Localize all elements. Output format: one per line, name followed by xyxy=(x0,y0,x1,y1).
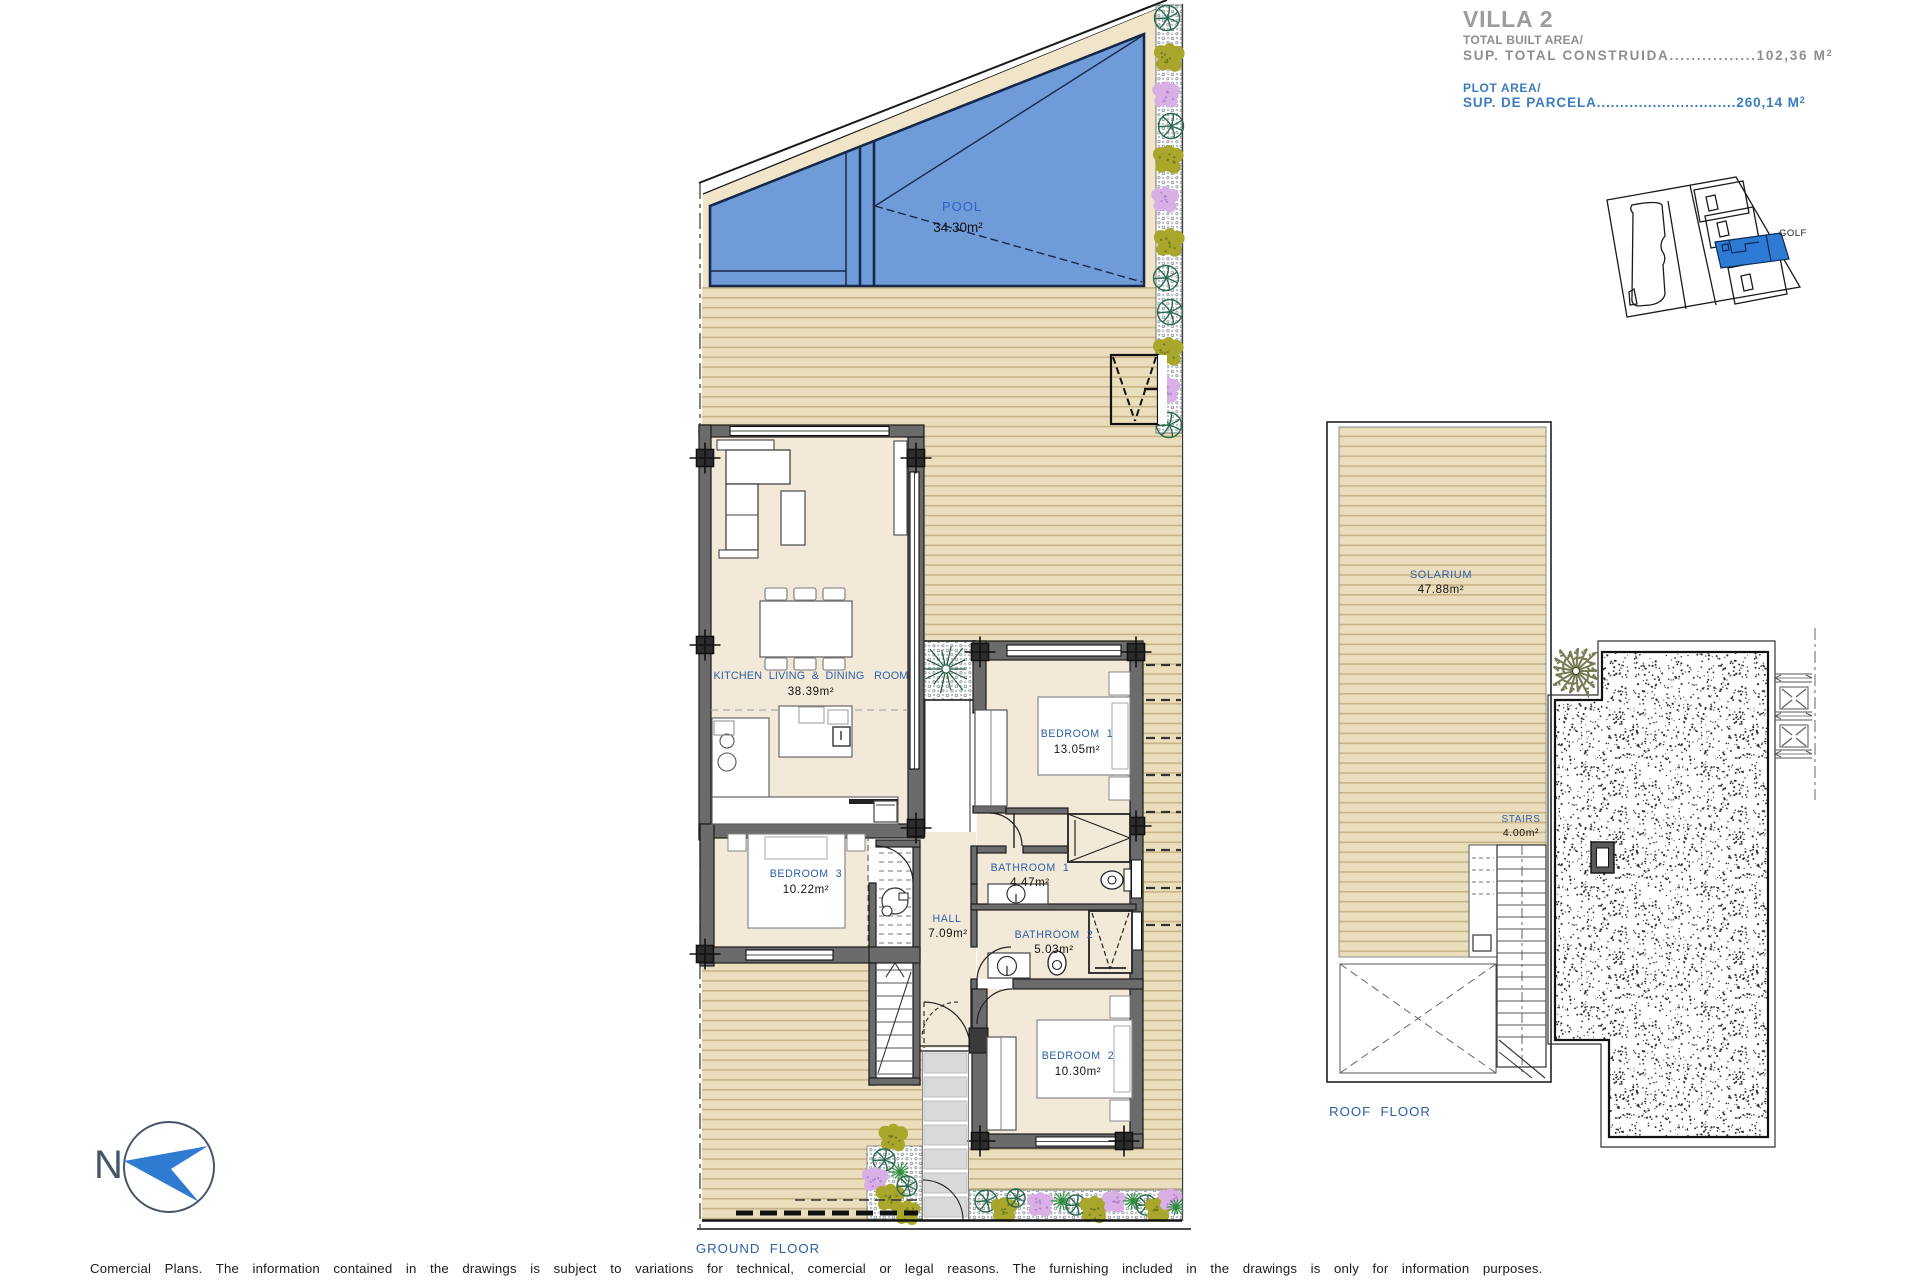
svg-text:KITCHEN LIVING & DINING R: KITCHEN LIVING & DINING ROOM xyxy=(714,670,909,682)
svg-text:7.09m²: 7.09m² xyxy=(928,928,967,940)
svg-text:BEDROOM 3: BEDROOM 3 xyxy=(770,868,843,880)
svg-text:47.88m²: 47.88m² xyxy=(1418,584,1464,596)
svg-text:SUP. TOTAL CONSTRUIDA.........: SUP. TOTAL CONSTRUIDA................102… xyxy=(1463,48,1833,63)
svg-text:BATHROOM 1: BATHROOM 1 xyxy=(991,862,1070,874)
svg-text:STAIRS: STAIRS xyxy=(1502,814,1541,825)
svg-text:PLOT AREA/: PLOT AREA/ xyxy=(1463,81,1541,95)
svg-text:POOL: POOL xyxy=(942,199,982,214)
svg-text:GOLF: GOLF xyxy=(1779,228,1807,239)
svg-text:BATHROOM 2: BATHROOM 2 xyxy=(1015,929,1094,941)
svg-text:BEDROOM 1: BEDROOM 1 xyxy=(1041,728,1114,740)
svg-text:4.47m²: 4.47m² xyxy=(1010,877,1049,889)
svg-text:VILLA 2: VILLA 2 xyxy=(1463,6,1553,32)
svg-text:38.39m²: 38.39m² xyxy=(788,686,834,698)
svg-text:10.30m²: 10.30m² xyxy=(1055,1066,1101,1078)
svg-text:10.22m²: 10.22m² xyxy=(783,884,829,896)
svg-text:SUP. DE PARCELA...............: SUP. DE PARCELA.........................… xyxy=(1463,95,1806,110)
svg-text:N: N xyxy=(94,1143,123,1187)
svg-text:SOLARIUM: SOLARIUM xyxy=(1410,569,1472,581)
svg-text:ROOF FLOOR: ROOF FLOOR xyxy=(1329,1104,1431,1119)
svg-text:HALL: HALL xyxy=(933,913,962,925)
svg-text:13.05m²: 13.05m² xyxy=(1054,744,1100,756)
svg-text:Comercial Plans. The informati: Comercial Plans. The information contain… xyxy=(90,1261,1543,1276)
svg-text:34.30m²: 34.30m² xyxy=(933,220,983,235)
svg-text:4.00m²: 4.00m² xyxy=(1503,827,1539,839)
svg-text:TOTAL BUILT AREA/: TOTAL BUILT AREA/ xyxy=(1463,33,1584,47)
svg-text:GROUND FLOOR: GROUND FLOOR xyxy=(696,1241,820,1256)
svg-text:BEDROOM 2: BEDROOM 2 xyxy=(1042,1050,1115,1062)
svg-text:5.03m²: 5.03m² xyxy=(1034,944,1073,956)
